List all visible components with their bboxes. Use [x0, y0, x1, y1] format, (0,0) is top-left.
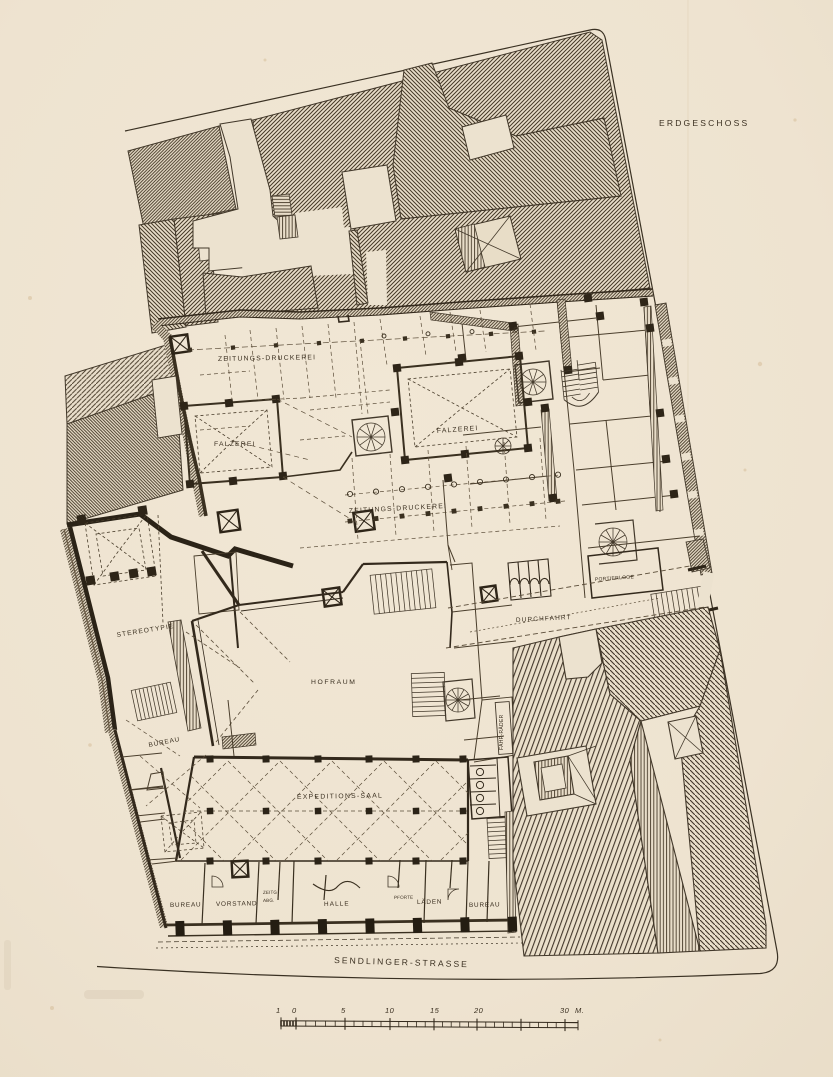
- svg-text:ABG.: ABG.: [263, 898, 274, 903]
- svg-text:FAHR-RÄDER: FAHR-RÄDER: [498, 714, 505, 750]
- svg-text:M.: M.: [575, 1006, 584, 1015]
- svg-text:5: 5: [341, 1006, 346, 1015]
- svg-text:VORSTAND: VORSTAND: [216, 900, 258, 908]
- svg-text:15: 15: [430, 1006, 440, 1015]
- svg-text:PFORTE: PFORTE: [394, 895, 413, 900]
- svg-text:HALLE: HALLE: [324, 901, 350, 908]
- svg-text:BUREAU: BUREAU: [469, 901, 501, 909]
- svg-text:ZEITG: ZEITG: [263, 890, 277, 895]
- svg-text:HOFRAUM: HOFRAUM: [311, 679, 357, 686]
- svg-text:30: 30: [560, 1006, 570, 1015]
- svg-text:20: 20: [473, 1006, 484, 1015]
- svg-text:BUREAU: BUREAU: [170, 901, 202, 909]
- svg-text:LÄDEN: LÄDEN: [417, 898, 442, 906]
- svg-text:ERDGESCHOSS: ERDGESCHOSS: [659, 118, 749, 128]
- svg-text:FALZEREI: FALZEREI: [214, 441, 256, 448]
- svg-text:10: 10: [385, 1006, 395, 1015]
- svg-text:1: 1: [276, 1006, 281, 1015]
- svg-text:0: 0: [292, 1006, 297, 1015]
